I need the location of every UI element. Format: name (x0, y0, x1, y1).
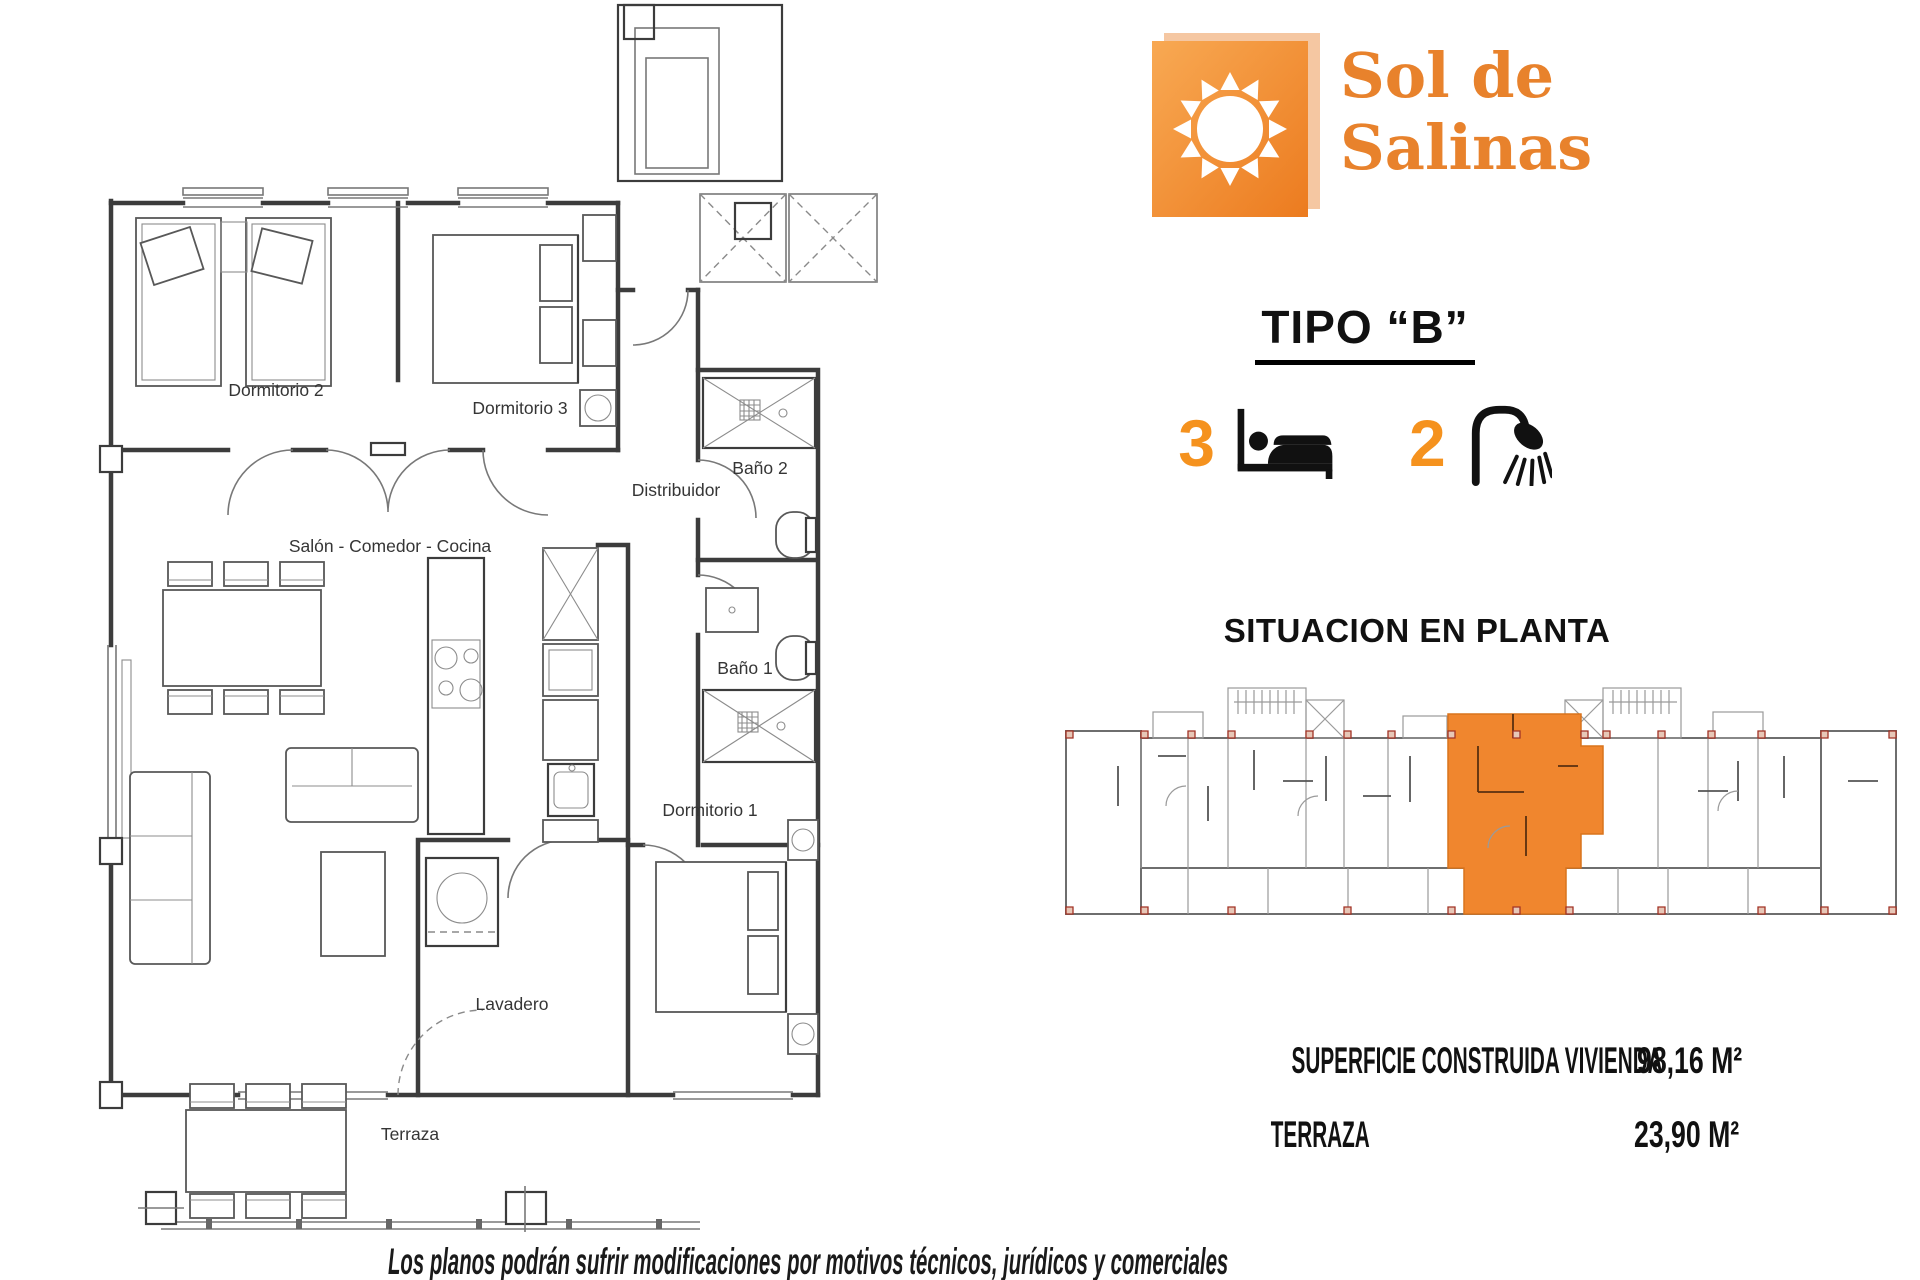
shower-icon (1466, 400, 1552, 486)
label-dormitorio1: Dormitorio 1 (662, 800, 757, 820)
highlighted-unit (1448, 714, 1603, 914)
unit-type-title-wrap: TIPO “B” (1150, 300, 1580, 365)
label-distribuidor: Distribuidor (632, 480, 721, 500)
bed-icon (1235, 407, 1335, 479)
situacion-title: SITUACION EN PLANTA (1212, 612, 1622, 650)
area-row-vivienda: SUPERFICIE CONSTRUIDA VIVIENDA 98,16 M² (1000, 1040, 1780, 1082)
room-terraza (138, 1084, 700, 1232)
logo-line2: Salinas (1340, 112, 1592, 184)
label-lavadero: Lavadero (476, 994, 549, 1014)
room-lavadero (426, 858, 498, 946)
room-dormitorio3 (433, 215, 616, 426)
bathroom-count: 2 (1409, 410, 1446, 476)
room-dormitorio2 (136, 218, 331, 386)
kitchen-units (428, 548, 598, 842)
living-furniture (130, 562, 418, 964)
label-bano1: Baño 1 (717, 658, 772, 678)
unit-features: 3 2 (1130, 400, 1600, 486)
logo-wordmark: Sol de Salinas (1340, 40, 1592, 184)
brochure-page: Dormitorio 2 Dormitorio 3 Baño 2 Distrib… (0, 0, 1920, 1280)
disclaimer-text: Los planos podrán sufrir modificaciones … (388, 1241, 1228, 1280)
area-value-terraza: 23,90 M² (1634, 1114, 1739, 1156)
unit-type-title: TIPO “B” (1255, 300, 1474, 365)
area-label-terraza: TERRAZA (1271, 1114, 1370, 1156)
label-salon: Salón - Comedor - Cocina (289, 536, 492, 556)
area-value-vivienda: 98,16 M² (1637, 1040, 1742, 1082)
area-row-terraza: TERRAZA 23,90 M² (1000, 1114, 1780, 1156)
label-dormitorio3: Dormitorio 3 (472, 398, 567, 418)
bedroom-count: 3 (1178, 410, 1215, 476)
area-label-vivienda: SUPERFICIE CONSTRUIDA VIVIENDA (1292, 1040, 1663, 1082)
logo-line1: Sol de (1340, 40, 1592, 112)
floor-plan: Dormitorio 2 Dormitorio 3 Baño 2 Distrib… (88, 0, 888, 1240)
label-terraza: Terraza (381, 1124, 440, 1144)
stairwell (618, 5, 877, 282)
situacion-plan (1058, 686, 1903, 921)
room-dormitorio1 (656, 820, 818, 1054)
sun-icon (1152, 33, 1322, 223)
label-dormitorio2: Dormitorio 2 (228, 380, 323, 400)
label-bano2: Baño 2 (732, 458, 787, 478)
